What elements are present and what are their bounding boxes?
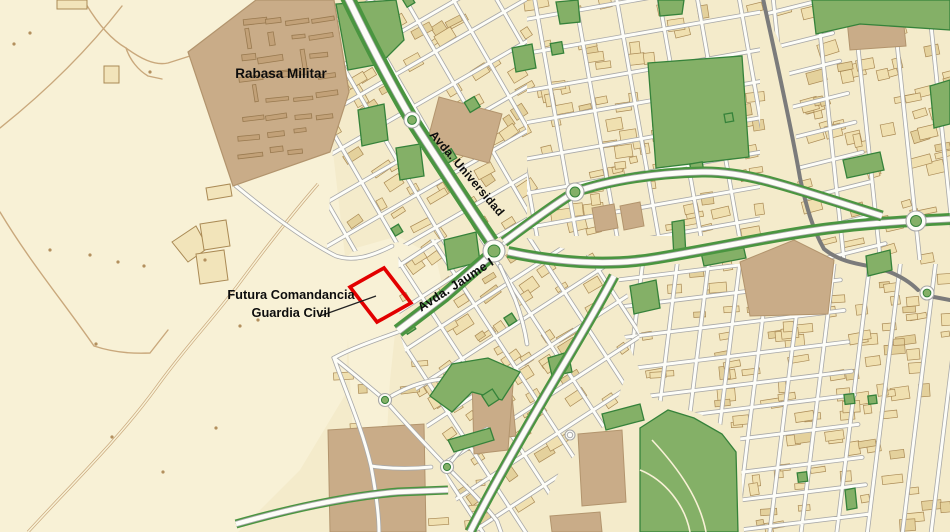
- military-building: [270, 146, 283, 153]
- building: [907, 349, 921, 361]
- building: [831, 295, 845, 303]
- building: [709, 282, 727, 293]
- building: [733, 415, 749, 426]
- park: [556, 0, 580, 24]
- building: [865, 356, 881, 367]
- building: [880, 122, 895, 136]
- park: [512, 44, 536, 72]
- building: [724, 306, 740, 313]
- building: [586, 51, 604, 63]
- terrain-speck: [148, 70, 151, 73]
- brown-complex: [620, 202, 644, 230]
- park: [658, 0, 684, 16]
- building: [890, 449, 905, 459]
- roundabout-center: [381, 396, 388, 403]
- small-park: [844, 394, 855, 405]
- building: [840, 69, 854, 83]
- terrain-speck: [161, 470, 164, 473]
- park: [930, 80, 950, 128]
- brown-complex: [550, 512, 602, 532]
- roundabout-center: [911, 216, 922, 227]
- small-park: [724, 113, 734, 123]
- building: [595, 61, 611, 70]
- park: [358, 104, 388, 146]
- roundabout-center: [567, 432, 573, 438]
- military-zone-label: Rabasa Militar: [235, 66, 327, 81]
- brown-complex: [578, 430, 626, 506]
- building: [756, 519, 764, 525]
- building: [937, 273, 950, 285]
- brown-complex: [592, 204, 618, 232]
- farm-building: [200, 220, 230, 250]
- park: [845, 488, 857, 510]
- terrain-speck: [203, 258, 206, 261]
- terrain-speck: [116, 260, 119, 263]
- building: [876, 68, 889, 80]
- building: [615, 161, 626, 169]
- park: [396, 144, 424, 180]
- building: [754, 203, 764, 215]
- annotation-label-line1: Futura Comandancia: [227, 287, 355, 302]
- building: [893, 338, 904, 345]
- annotation-label-line2: Guardia Civil: [252, 305, 331, 320]
- small-park: [868, 395, 877, 404]
- roundabout-center: [443, 463, 450, 470]
- small-park: [797, 472, 808, 483]
- building: [909, 487, 919, 494]
- small-park: [550, 42, 563, 55]
- roundabout-center: [923, 289, 931, 297]
- rural-building: [57, 0, 87, 9]
- terrain-speck: [88, 253, 91, 256]
- roundabout-center: [488, 245, 500, 257]
- park: [630, 280, 660, 314]
- building: [590, 193, 600, 205]
- terrain-speck: [238, 324, 241, 327]
- farm-building: [196, 250, 228, 284]
- terrain-speck: [94, 342, 97, 345]
- building: [428, 517, 448, 525]
- building: [882, 474, 903, 485]
- park: [648, 56, 749, 168]
- roundabout-center: [570, 187, 580, 197]
- building: [863, 404, 872, 414]
- city-map: Rabasa Militar Avda. Universidad Avda. J…: [0, 0, 950, 532]
- military-building: [242, 53, 256, 61]
- terrain-speck: [110, 435, 113, 438]
- building: [906, 314, 918, 321]
- building: [941, 313, 950, 326]
- rural-building: [104, 66, 119, 83]
- terrain-speck: [48, 248, 51, 251]
- building: [903, 306, 916, 313]
- building: [906, 296, 919, 306]
- map-canvas: Rabasa Militar Avda. Universidad Avda. J…: [0, 0, 950, 532]
- terrain-speck: [28, 31, 31, 34]
- terrain-speck: [142, 264, 145, 267]
- building: [922, 500, 942, 511]
- terrain-speck: [12, 42, 15, 45]
- building: [940, 501, 950, 512]
- roundabout-center: [408, 116, 417, 125]
- building: [941, 331, 950, 337]
- building: [749, 483, 760, 496]
- building: [630, 42, 641, 55]
- building: [606, 117, 623, 131]
- building: [860, 494, 870, 503]
- building: [629, 156, 638, 164]
- terrain-speck: [214, 426, 217, 429]
